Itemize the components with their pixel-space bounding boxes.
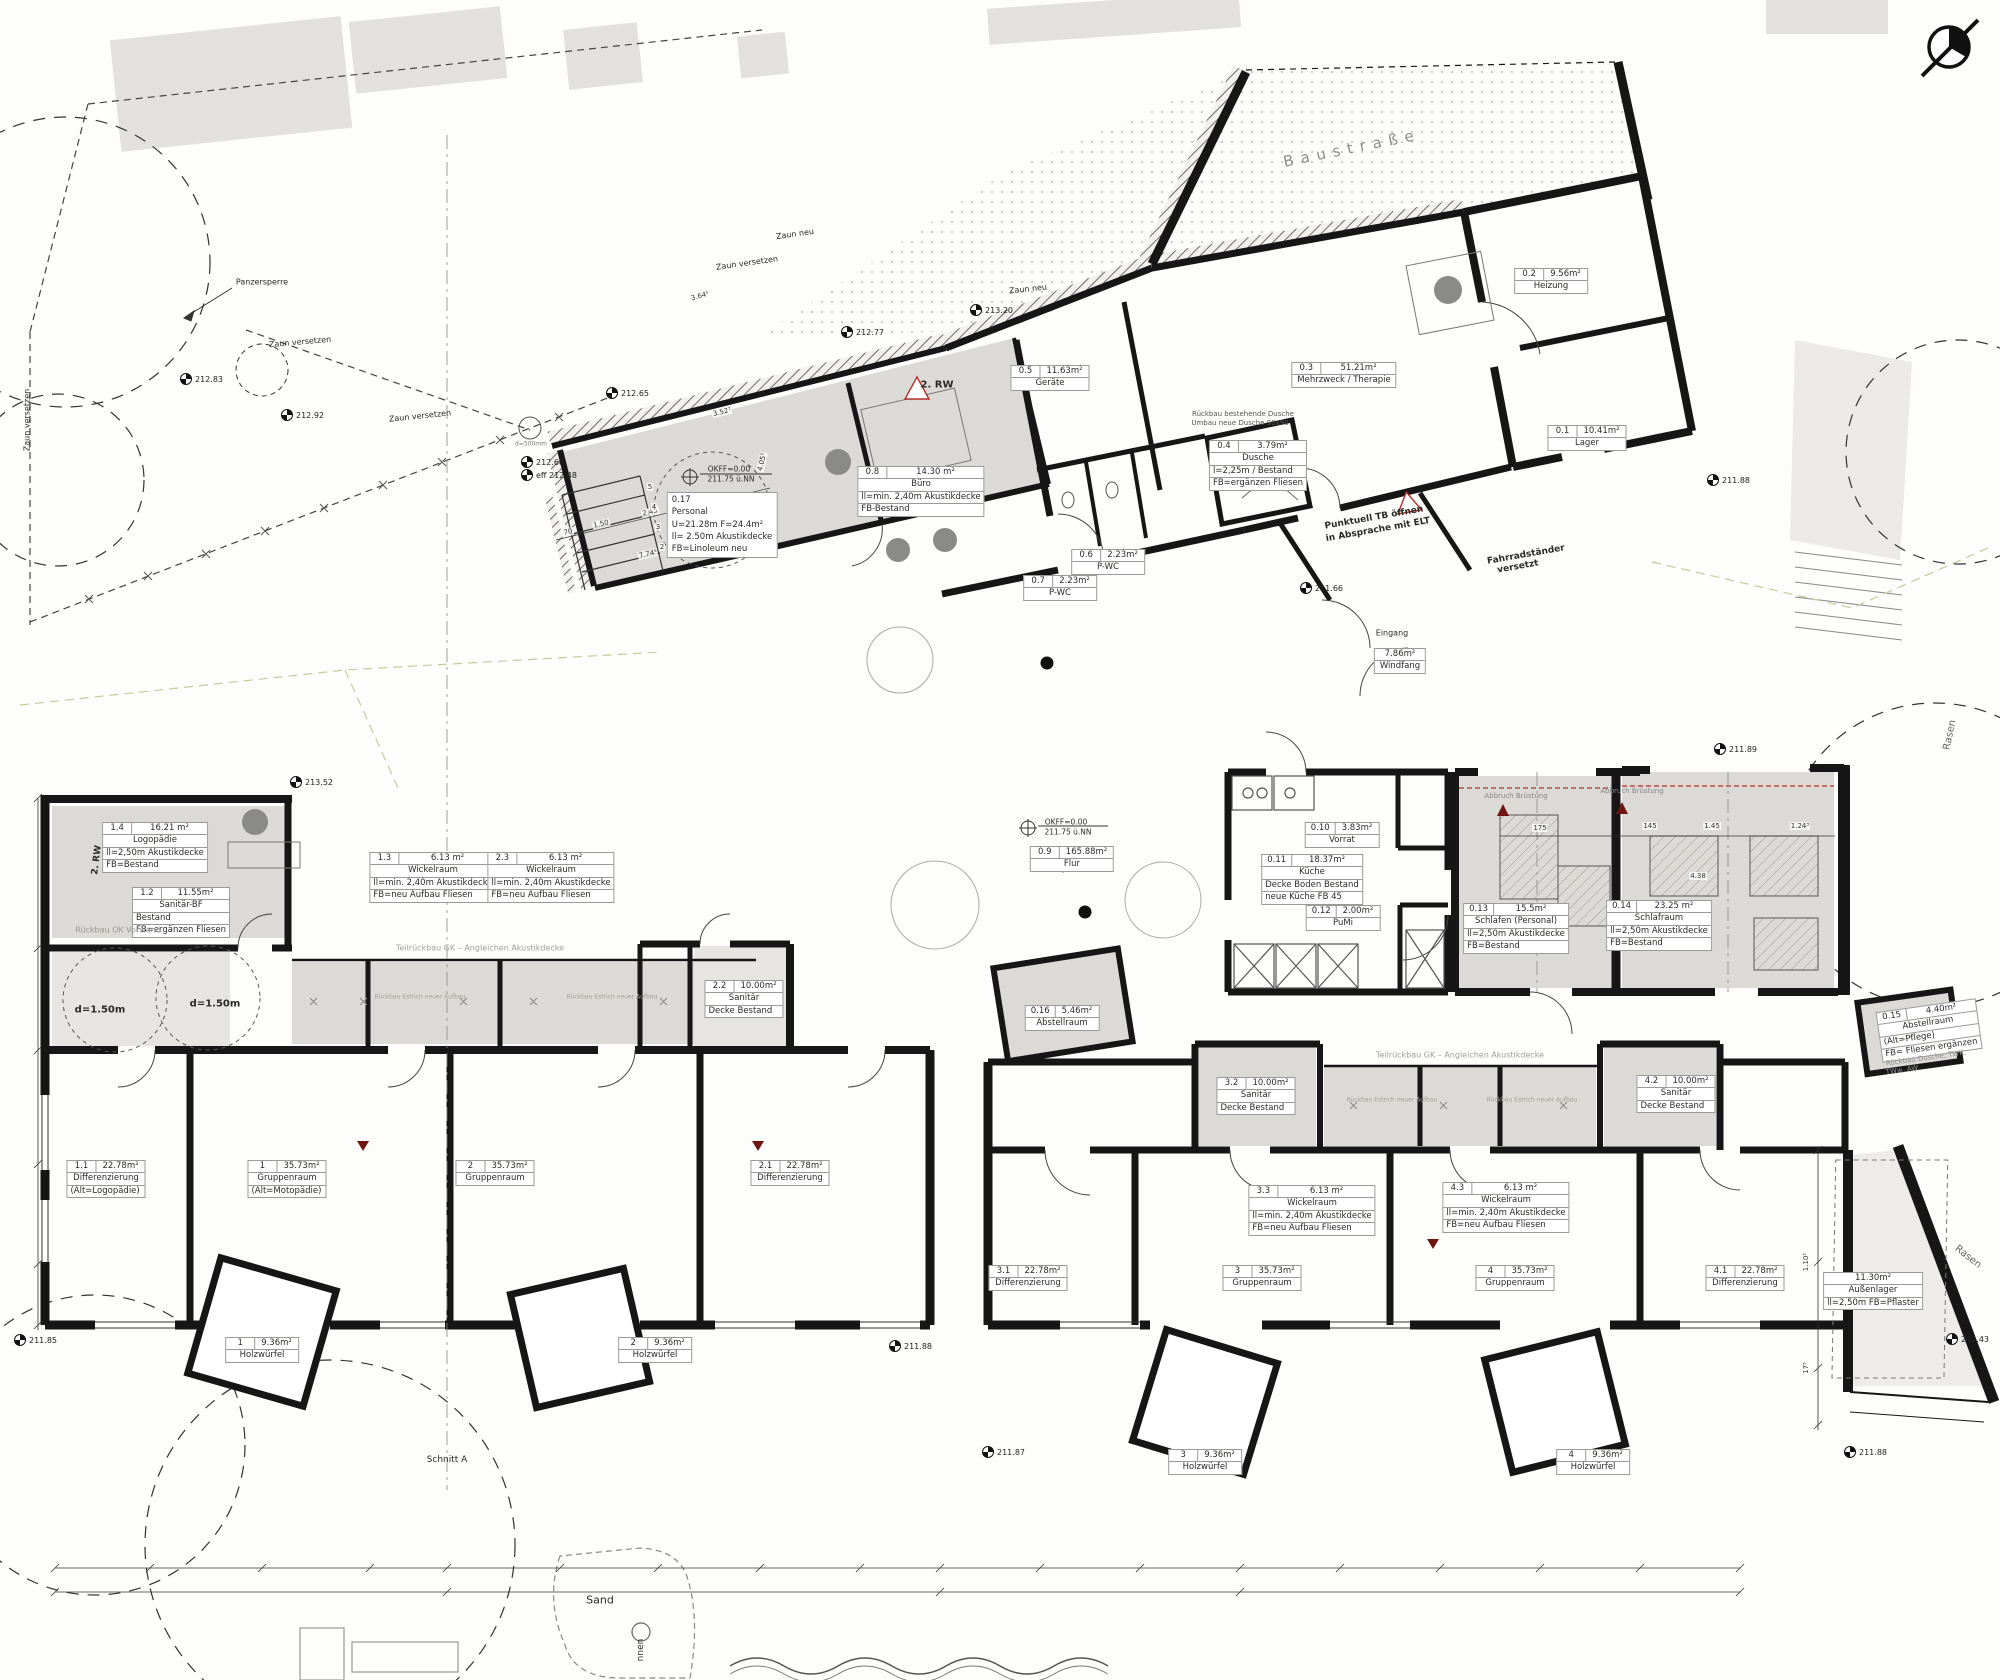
- room-number: 0.9: [1031, 847, 1060, 858]
- elevation-marker: 212.65: [606, 387, 649, 399]
- room-area: 9.36m²: [255, 1338, 298, 1349]
- elevation-value: 212.43: [1961, 1335, 1989, 1344]
- room-area: 11.55m²: [162, 888, 229, 899]
- room-label-line: ll=2,50m Akustikdecke: [103, 847, 207, 859]
- utility-circle-icon: [1922, 20, 1978, 76]
- room-name: Logopädie: [103, 835, 207, 846]
- room-name: Differenzierung: [989, 1278, 1066, 1289]
- room-label-line: FB-Bestand: [858, 503, 983, 515]
- elevation-marker-icon: [970, 304, 982, 316]
- dimension-label: 3: [655, 523, 661, 531]
- room-label-line: ll=min. 2,40m Akustikdecke: [858, 491, 983, 503]
- elevation-marker: 212.77: [841, 326, 884, 338]
- holzwuerfel-cubes: [188, 1258, 1626, 1475]
- annotation-text: nnen: [636, 1639, 646, 1662]
- room-name: P-WC: [1072, 562, 1144, 573]
- annotation-text: OKFF=0.00: [1045, 818, 1087, 827]
- courtyard-trees: [867, 627, 1201, 949]
- elevation-marker: 211.88: [1707, 474, 1750, 486]
- dimension-label: 175: [1532, 824, 1547, 832]
- room-name: Mehrzweck / Therapie: [1292, 375, 1395, 386]
- room-name: Flur: [1031, 859, 1113, 870]
- elevation-marker-icon: [889, 1340, 901, 1352]
- room-area: 11.63m²: [1040, 366, 1088, 377]
- room-label: 0.1118.37m²KücheDecke Boden Bestandneue …: [1261, 854, 1363, 905]
- dimension-label: 5: [647, 483, 653, 491]
- outdoor-steps: [1795, 552, 1902, 640]
- room-name: Differenzierung: [751, 1173, 828, 1184]
- room-number: 3: [1169, 1450, 1198, 1461]
- elevation-value: 213.20: [985, 306, 1013, 315]
- elevation-marker: 212.43: [1946, 1333, 1989, 1345]
- room-label-line: 0.17: [672, 494, 773, 506]
- elevation-value: 212.77: [856, 328, 884, 337]
- elevation-value: 211.89: [1729, 745, 1757, 754]
- room-number: 0.8: [858, 467, 887, 478]
- room-label: 0.103.83m²Vorrat: [1305, 822, 1380, 848]
- room-name: Gruppenraum: [1476, 1278, 1553, 1289]
- room-label-line: U=21.28m F=24.4m²: [672, 519, 773, 531]
- room-name: Differenzierung: [1706, 1278, 1783, 1289]
- elevation-value: 213.52: [305, 778, 333, 787]
- annotation-text: Panzersperre: [236, 278, 288, 287]
- room-label-line: FB=neu Aufbau Fliesen: [488, 889, 613, 901]
- annotation-text: Schnitt A: [427, 1455, 468, 1465]
- room-label-line: Bestand: [133, 912, 229, 924]
- room-name: Lager: [1548, 438, 1625, 449]
- room-label: 19.36m²Holzwürfel: [225, 1337, 299, 1363]
- room-label: 435.73m²Gruppenraum: [1475, 1265, 1554, 1291]
- room-area: 23.25 m²: [1637, 901, 1711, 912]
- elevation-marker-icon: [1714, 743, 1726, 755]
- room-area: 35.73m²: [1505, 1266, 1553, 1277]
- room-number: 1.1: [67, 1161, 96, 1172]
- room-name: Sanitär-BF: [133, 900, 229, 911]
- annotation-text: OKFF=0.00: [708, 465, 750, 474]
- room-label: 0.17PersonalU=21.28m F=24.4m²ll= 2.50m A…: [667, 492, 778, 558]
- room-area: 9.36m²: [1586, 1450, 1629, 1461]
- room-number: 2.2: [705, 981, 734, 992]
- elevation-value: 211.66: [1315, 584, 1343, 593]
- room-number: 4.2: [1637, 1076, 1666, 1087]
- room-name: Küche: [1262, 867, 1362, 878]
- room-area: 11.30m²: [1824, 1273, 1922, 1284]
- elevation-marker: eff 212.48: [521, 469, 577, 481]
- room-name: Sanitär: [1637, 1088, 1714, 1099]
- room-area: 6.13 m²: [399, 853, 495, 864]
- room-area: 3.83m²: [1336, 823, 1379, 834]
- room-label-line: Decke Bestand: [705, 1005, 782, 1017]
- room-label: 0.62.23m²P-WC: [1071, 549, 1145, 575]
- elevation-marker-icon: [1707, 474, 1719, 486]
- room-area: 7.86m²: [1375, 649, 1425, 660]
- room-area: 6.13 m²: [1472, 1183, 1568, 1194]
- room-area: 2.23m²: [1101, 550, 1144, 561]
- elevation-marker-icon: [180, 373, 192, 385]
- room-label-line: FB=neu Aufbau Fliesen: [1249, 1222, 1374, 1234]
- elevation-marker: 211.85: [14, 1334, 57, 1346]
- room-label: 29.36m²Holzwürfel: [618, 1337, 692, 1363]
- room-label: 0.814.30 m²Büroll=min. 2,40m Akustikdeck…: [857, 466, 984, 517]
- room-number: 4: [1476, 1266, 1505, 1277]
- room-label: 2.36.13 m²Wickelraumll=min. 2,40m Akusti…: [487, 852, 614, 903]
- room-label-line: ll=min. 2,40m Akustikdecke: [488, 877, 613, 889]
- room-label: 7.86m²Windfang: [1374, 648, 1426, 674]
- room-label: 4.210.00m²SanitärDecke Bestand: [1636, 1075, 1715, 1113]
- room-number: 0.13: [1464, 904, 1494, 915]
- room-label-line: ll=min. 2,40m Akustikdecke: [370, 877, 495, 889]
- room-number: 2: [456, 1161, 485, 1172]
- annotation-text: 211.75 ü.NN: [1045, 828, 1092, 837]
- room-area: 9.36m²: [1198, 1450, 1241, 1461]
- room-name: Gruppenraum: [1223, 1278, 1300, 1289]
- room-name: Schlafen (Personal): [1464, 916, 1568, 927]
- annotation-text: Umbau neue Dusche 90x90: [1191, 419, 1288, 427]
- dimension-label: 2: [659, 543, 665, 551]
- room-label: 1.122.78m²Differenzierung(Alt=Logopädie): [66, 1160, 145, 1198]
- room-label: 335.73m²Gruppenraum: [1222, 1265, 1301, 1291]
- room-area: 10.00m²: [1246, 1078, 1294, 1089]
- room-label-line: ll=2,50m FB=Pflaster: [1824, 1297, 1922, 1309]
- shaft-circle: [519, 417, 541, 439]
- room-area: 9.36m²: [648, 1338, 691, 1349]
- room-label-line: FB=neu Aufbau Fliesen: [370, 889, 495, 901]
- room-label: 0.122.00m²PuMi: [1306, 905, 1381, 931]
- annotation-text: d=500mm: [515, 441, 547, 448]
- room-label: 135.73m²Gruppenraum(Alt=Motopädie): [247, 1160, 326, 1198]
- dimension-label: 1.45: [1703, 822, 1721, 830]
- room-area: 16.21 m²: [132, 823, 207, 834]
- room-label: 0.511.63m²Geräte: [1010, 365, 1089, 391]
- room-name: Vorrat: [1306, 835, 1379, 846]
- room-label: 1.416.21 m²Logopädiell=2,50m Akustikdeck…: [102, 822, 208, 873]
- room-number: 0.3: [1292, 363, 1321, 374]
- annotation-text: Rückbau bestehende Dusche: [1192, 410, 1294, 418]
- room-number: 3: [1223, 1266, 1252, 1277]
- room-name: Dusche: [1210, 453, 1306, 464]
- room-label-line: Decke Boden Bestand: [1262, 879, 1362, 891]
- room-label-line: neue Küche FB 45: [1262, 891, 1362, 903]
- elevation-marker-icon: [982, 1446, 994, 1458]
- room-number: 4.1: [1706, 1266, 1735, 1277]
- room-area: 51.21m²: [1321, 363, 1395, 374]
- room-number: 0.10: [1306, 823, 1336, 834]
- room-number: 4.3: [1443, 1183, 1472, 1194]
- room-label: 0.1423.25 m²Schlafraumll=2,50m Akustikde…: [1606, 900, 1712, 951]
- room-label-line: Personal: [672, 506, 773, 518]
- room-area: 35.73m²: [485, 1161, 533, 1172]
- room-area: 9.56m²: [1544, 269, 1587, 280]
- elevation-marker: 211.89: [1714, 743, 1757, 755]
- annotation-text: 211.75 ü.NN: [708, 475, 755, 484]
- room-label: 2.210.00m²SanitärDecke Bestand: [704, 980, 783, 1018]
- room-area: 2.23m²: [1053, 576, 1096, 587]
- room-number: 3.2: [1217, 1078, 1246, 1089]
- room-area: 5.46m²: [1056, 1006, 1099, 1017]
- room-area: 165.88m²: [1060, 847, 1113, 858]
- elevation-marker-icon: [1946, 1333, 1958, 1345]
- room-label-line: FB=Bestand: [103, 859, 207, 871]
- room-area: 6.13 m²: [1278, 1186, 1374, 1197]
- elevation-marker-icon: [606, 387, 618, 399]
- elevation-value: 211.85: [29, 1336, 57, 1345]
- room-label: 39.36m²Holzwürfel: [1168, 1449, 1242, 1475]
- room-label: 0.110.41m²Lager: [1547, 425, 1626, 451]
- room-number: 0.7: [1024, 576, 1053, 587]
- room-name: Sanitär: [1217, 1090, 1294, 1101]
- room-number: 0.6: [1072, 550, 1101, 561]
- annotation-text: Eingang: [1376, 629, 1408, 638]
- room-number: 1: [226, 1338, 255, 1349]
- room-label: 49.36m²Holzwürfel: [1556, 1449, 1630, 1475]
- room-area: 22.78m²: [96, 1161, 144, 1172]
- room-name: Holzwürfel: [1169, 1462, 1241, 1473]
- room-area: 3.79m²: [1239, 441, 1306, 452]
- room-name: Holzwürfel: [226, 1350, 298, 1361]
- annotation-text: Zaun versetzen: [23, 389, 32, 451]
- room-name: Sanitär: [705, 993, 782, 1004]
- room-number: 0.2: [1515, 269, 1544, 280]
- fence-x-marks: [85, 413, 563, 603]
- room-name: Geräte: [1011, 378, 1088, 389]
- room-name: Wickelraum: [1249, 1198, 1374, 1209]
- room-label-line: ll= 2.50m Akustikdecke: [672, 531, 773, 543]
- room-area: 22.78m²: [780, 1161, 828, 1172]
- room-name: PuMi: [1307, 918, 1380, 929]
- floor-plan-canvas: 0.17PersonalU=21.28m F=24.4m²ll= 2.50m A…: [0, 0, 2000, 1680]
- room-label-line: FB=ergänzen Fliesen: [1210, 477, 1306, 489]
- room-label-line: ll=min. 2,40m Akustikdecke: [1249, 1210, 1374, 1222]
- room-label: 11.30m²Außenlagerll=2,50m FB=Pflaster: [1823, 1272, 1923, 1310]
- annotation-text: 2. RW: [921, 380, 954, 391]
- room-area: 22.78m²: [1018, 1266, 1066, 1277]
- room-number: 0.12: [1307, 906, 1337, 917]
- elevation-marker-icon: [290, 776, 302, 788]
- room-name: Schlafraum: [1607, 913, 1711, 924]
- room-name: Differenzierung: [67, 1173, 144, 1184]
- elevation-marker: 212.92: [281, 409, 324, 421]
- annotation-text: d=1.50m: [75, 1005, 126, 1016]
- room-number: 0.16: [1026, 1006, 1056, 1017]
- elevation-value: 212.92: [296, 411, 324, 420]
- room-number: 1.2: [133, 888, 162, 899]
- tree-dot: [1079, 906, 1092, 919]
- slope-area: [1790, 340, 1912, 560]
- room-number: 3.1: [989, 1266, 1018, 1277]
- room-area: 18.37m²: [1292, 855, 1362, 866]
- room-label: 0.29.56m²Heizung: [1514, 268, 1588, 294]
- room-name: Wickelraum: [488, 865, 613, 876]
- room-label-line: Decke Bestand: [1217, 1102, 1294, 1114]
- dimension-label: 4.38: [1689, 872, 1707, 880]
- annotation-text: Rückbau OK Vorwand: [75, 926, 161, 935]
- annotation-text: Rückbau Estrich neuer Aufbau: [375, 994, 466, 1001]
- room-number: 0.4: [1210, 441, 1239, 452]
- room-number: 2: [619, 1338, 648, 1349]
- elevation-marker-icon: [521, 469, 533, 481]
- room-number: 0.14: [1607, 901, 1637, 912]
- elevation-marker: 211.88: [889, 1340, 932, 1352]
- room-name: Abstellraum: [1026, 1018, 1099, 1029]
- room-label-line: ll=2,50m Akustikdecke: [1607, 925, 1711, 937]
- room-name: Büro: [858, 479, 983, 490]
- dimension-label: 4: [651, 503, 657, 511]
- tree-dot: [1041, 657, 1054, 670]
- annotation-text: Abbruch Brüstung: [1600, 787, 1663, 795]
- room-label: 4.122.78m²Differenzierung: [1705, 1265, 1784, 1291]
- elevation-value: 211.88: [904, 1342, 932, 1351]
- room-label: 0.43.79m²Duschel=2,25m / BestandFB=ergän…: [1209, 440, 1307, 491]
- room-area: 6.13 m²: [517, 853, 613, 864]
- annotation-text: Teilrückbau GK – Angleichen Akustikdecke: [1376, 1051, 1544, 1060]
- dimension-label: 1.10¹: [1802, 1252, 1810, 1272]
- room-number: 1.3: [370, 853, 399, 864]
- room-label-line: FB=Bestand: [1464, 940, 1568, 952]
- room-number: 2.3: [488, 853, 517, 864]
- room-name: Holzwürfel: [1557, 1462, 1629, 1473]
- elevation-marker: 211.66: [1300, 582, 1343, 594]
- plan-linework: [0, 0, 2000, 1680]
- dimension-label: 1.24³: [1790, 822, 1810, 830]
- room-label-line: ll=min. 2,40m Akustikdecke: [1443, 1207, 1568, 1219]
- elevation-value: 211.88: [1722, 476, 1750, 485]
- annotation-text: Abbruch Brüstung: [1484, 792, 1547, 800]
- elevation-marker-icon: [1300, 582, 1312, 594]
- room-name: Gruppenraum: [456, 1173, 533, 1184]
- room-number: 0.5: [1011, 366, 1040, 377]
- room-name: Windfang: [1375, 661, 1425, 672]
- annotation-text: Rückbau Estrich neuer Aufbau: [1487, 1097, 1578, 1104]
- room-number: 1.4: [103, 823, 132, 834]
- elevation-marker: 211.87: [982, 1446, 1025, 1458]
- room-area: 35.73m²: [1252, 1266, 1300, 1277]
- annotation-text: Rückbau Estrich neuer Aufbau: [567, 994, 658, 1001]
- room-label-line: (Alt=Motopädie): [248, 1185, 325, 1197]
- annotation-text: Teilrückbau GK – Angleichen Akustikdecke: [396, 944, 564, 953]
- room-name: Holzwürfel: [619, 1350, 691, 1361]
- room-name: P-WC: [1024, 588, 1096, 599]
- elevation-marker-icon: [14, 1334, 26, 1346]
- room-number: 4: [1557, 1450, 1586, 1461]
- room-label: 0.351.21m²Mehrzweck / Therapie: [1291, 362, 1396, 388]
- elevation-marker: 213.20: [970, 304, 1013, 316]
- room-label: 235.73m²Gruppenraum: [455, 1160, 534, 1186]
- elevation-marker: 212.60: [521, 456, 564, 468]
- room-name: Heizung: [1515, 281, 1587, 292]
- elevation-marker: 213.52: [290, 776, 333, 788]
- room-label-line: Decke Bestand: [1637, 1100, 1714, 1112]
- room-label: 0.9165.88m²Flur: [1030, 846, 1114, 872]
- dimension-label: 145: [1642, 822, 1657, 830]
- room-label: 2.122.78m²Differenzierung: [750, 1160, 829, 1186]
- room-label: 3.122.78m²Differenzierung: [988, 1265, 1067, 1291]
- room-area: 22.78m²: [1735, 1266, 1783, 1277]
- room-area: 2.00m²: [1337, 906, 1380, 917]
- elevation-marker: 211.88: [1844, 1446, 1887, 1458]
- room-label-line: FB=Linoleum neu: [672, 543, 773, 555]
- room-label: 3.36.13 m²Wickelraumll=min. 2,40m Akusti…: [1248, 1185, 1375, 1236]
- room-area: 15.5m²: [1494, 904, 1568, 915]
- annotation-text: Rückbau Estrich neuer Aufbau: [1347, 1097, 1438, 1104]
- room-label-line: FB=neu Aufbau Fliesen: [1443, 1219, 1568, 1231]
- room-number: 3.3: [1249, 1186, 1278, 1197]
- room-label: 0.72.23m²P-WC: [1023, 575, 1097, 601]
- room-label: 1.36.13 m²Wickelraumll=min. 2,40m Akusti…: [369, 852, 496, 903]
- room-area: 10.41m²: [1577, 426, 1625, 437]
- room-area: 35.73m²: [277, 1161, 325, 1172]
- room-label: 4.36.13 m²Wickelraumll=min. 2,40m Akusti…: [1442, 1182, 1569, 1233]
- elevation-value: eff 212.48: [536, 471, 577, 480]
- room-label: 0.165.46m²Abstellraum: [1025, 1005, 1100, 1031]
- room-number: 2.1: [751, 1161, 780, 1172]
- elevation-marker-icon: [521, 456, 533, 468]
- elevation-marker-icon: [841, 326, 853, 338]
- room-label-line: (Alt=Logopädie): [67, 1185, 144, 1197]
- room-label: 0.1315.5m²Schlafen (Personal)ll=2,50m Ak…: [1463, 903, 1569, 954]
- elevation-value: 211.88: [1859, 1448, 1887, 1457]
- room-name: Wickelraum: [1443, 1195, 1568, 1206]
- room-label-line: FB=Bestand: [1607, 937, 1711, 949]
- room-name: Wickelraum: [370, 865, 495, 876]
- elevation-marker-icon: [1844, 1446, 1856, 1458]
- room-area: 14.30 m²: [887, 467, 983, 478]
- elevation-marker: 212.83: [180, 373, 223, 385]
- annotation-text: Sand: [586, 1594, 614, 1607]
- room-area: 10.00m²: [734, 981, 782, 992]
- room-number: 0.11: [1262, 855, 1292, 866]
- elevation-value: 212.60: [536, 458, 564, 467]
- room-area: 10.00m²: [1666, 1076, 1714, 1087]
- room-number: 0.1: [1548, 426, 1577, 437]
- annotation-text: d=1.50m: [190, 999, 241, 1010]
- room-number: 1: [248, 1161, 277, 1172]
- room-label: 3.210.00m²SanitärDecke Bestand: [1216, 1077, 1295, 1115]
- room-label-line: ll=2,50m Akustikdecke: [1464, 928, 1568, 940]
- room-name: Außenlager: [1824, 1285, 1922, 1296]
- elevation-value: 211.87: [997, 1448, 1025, 1457]
- elevation-marker-icon: [281, 409, 293, 421]
- room-label-line: l=2,25m / Bestand: [1210, 465, 1306, 477]
- dimension-label: 17⁵: [1802, 1361, 1810, 1375]
- room-name: Gruppenraum: [248, 1173, 325, 1184]
- elevation-value: 212.83: [195, 375, 223, 384]
- elevation-value: 212.65: [621, 389, 649, 398]
